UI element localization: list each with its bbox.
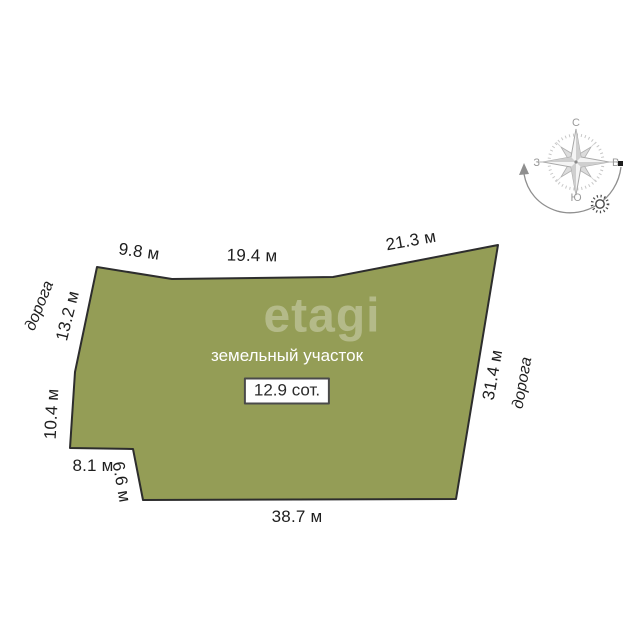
dimension-left-lower: 10.4 м [41,388,64,440]
dimension-top-2: 19.4 м [226,246,277,267]
area-badge: 12.9 сот. [244,378,330,405]
compass-west-label: З [533,157,540,169]
compass-south-label: Ю [570,192,581,204]
compass-north-label: С [572,117,580,129]
watermark: etagi [263,289,380,344]
arrow-start-dot [618,161,623,166]
dimension-bottom: 38.7 м [272,507,323,527]
land-plot-polygon [70,245,498,500]
land-plot-diagram: С В З Ю etagi земельный участок 12.9 сот… [0,0,640,640]
plot-title: земельный участок [211,346,363,366]
compass-rose: С В З Ю [533,117,619,204]
arrowhead [519,163,529,175]
